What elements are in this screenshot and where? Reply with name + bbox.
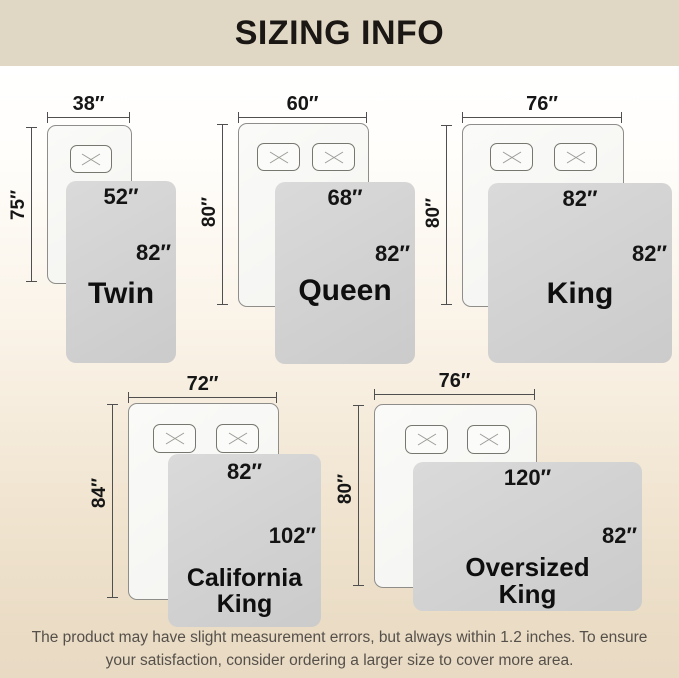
pillow — [405, 425, 448, 454]
blanket: 120″ 82″ Oversized King — [413, 462, 642, 611]
blanket-width-label: 68″ — [275, 185, 415, 211]
blanket-size-name: Oversized King — [440, 554, 615, 607]
pillow — [153, 424, 196, 453]
bed-height-dimension-line — [112, 404, 113, 598]
pillow-x-icon — [478, 432, 500, 447]
header-bar: SIZING INFO — [0, 0, 679, 66]
bed-height-label: 84″ — [89, 478, 111, 508]
bed-width-dimension-line — [462, 117, 622, 118]
bed-height-label: 80″ — [335, 474, 357, 504]
blanket: 82″ 82″ King — [488, 183, 672, 363]
bed-height-dimension-line — [31, 127, 32, 282]
bed-width-dimension-line — [374, 394, 535, 395]
bed-width-dimension-line — [47, 117, 130, 118]
blanket-height-label: 82″ — [136, 240, 171, 266]
bed-height-label: 75″ — [8, 190, 30, 220]
bed-width-label: 38″ — [47, 92, 130, 116]
bed-height-dimension-line — [358, 405, 359, 586]
footer-note: The product may have slight measurement … — [0, 627, 679, 672]
bed-width-dimension-line — [238, 117, 367, 118]
blanket-height-label: 102″ — [269, 523, 316, 549]
pillow — [467, 425, 510, 454]
blanket-size-name: Queen — [298, 276, 391, 307]
pillow-x-icon — [268, 150, 290, 165]
bed-height-dimension-line — [222, 124, 223, 305]
pillow — [312, 143, 355, 171]
pillow-x-icon — [501, 150, 523, 165]
bed-width-label: 72″ — [128, 372, 277, 396]
blanket-width-label: 52″ — [66, 184, 176, 210]
bed-width-label: 76″ — [374, 369, 535, 393]
pillow-x-icon — [565, 150, 587, 165]
bed-width-dimension-line — [128, 397, 277, 398]
bed-height-dimension-line — [446, 125, 447, 305]
blanket: 52″ 82″ Twin — [66, 181, 176, 363]
pillow-x-icon — [227, 431, 249, 446]
blanket: 82″ 102″ California King — [168, 454, 321, 627]
pillow-x-icon — [164, 431, 186, 446]
sizing-info-graphic: SIZING INFO 38″ 75″ 52″ 82″ Twin 60″ 80″ — [0, 0, 679, 678]
blanket-height-label: 82″ — [632, 241, 667, 267]
blanket-width-label: 82″ — [168, 459, 321, 485]
blanket-size-name: Twin — [88, 279, 154, 310]
bed-height-label: 80″ — [423, 198, 445, 228]
blanket: 68″ 82″ Queen — [275, 182, 415, 364]
pillow-x-icon — [323, 150, 345, 165]
pillow — [216, 424, 259, 453]
blanket-width-label: 120″ — [413, 465, 642, 491]
blanket-height-label: 82″ — [602, 523, 637, 549]
footer-note-text: The product may have slight measurement … — [26, 627, 654, 672]
pillow — [70, 145, 112, 173]
blanket-width-label: 82″ — [488, 186, 672, 212]
pillow-x-icon — [80, 152, 102, 167]
bed-width-label: 76″ — [462, 92, 622, 116]
blanket-height-label: 82″ — [375, 241, 410, 267]
bed-width-label: 60″ — [238, 92, 367, 116]
pillow — [554, 143, 597, 171]
bed-height-label: 80″ — [199, 197, 221, 227]
blanket-size-name: King — [547, 279, 614, 310]
pillow — [490, 143, 533, 171]
pillow — [257, 143, 300, 171]
page-title: SIZING INFO — [235, 14, 445, 53]
pillow-x-icon — [416, 432, 438, 447]
blanket-size-name: California King — [165, 566, 325, 617]
